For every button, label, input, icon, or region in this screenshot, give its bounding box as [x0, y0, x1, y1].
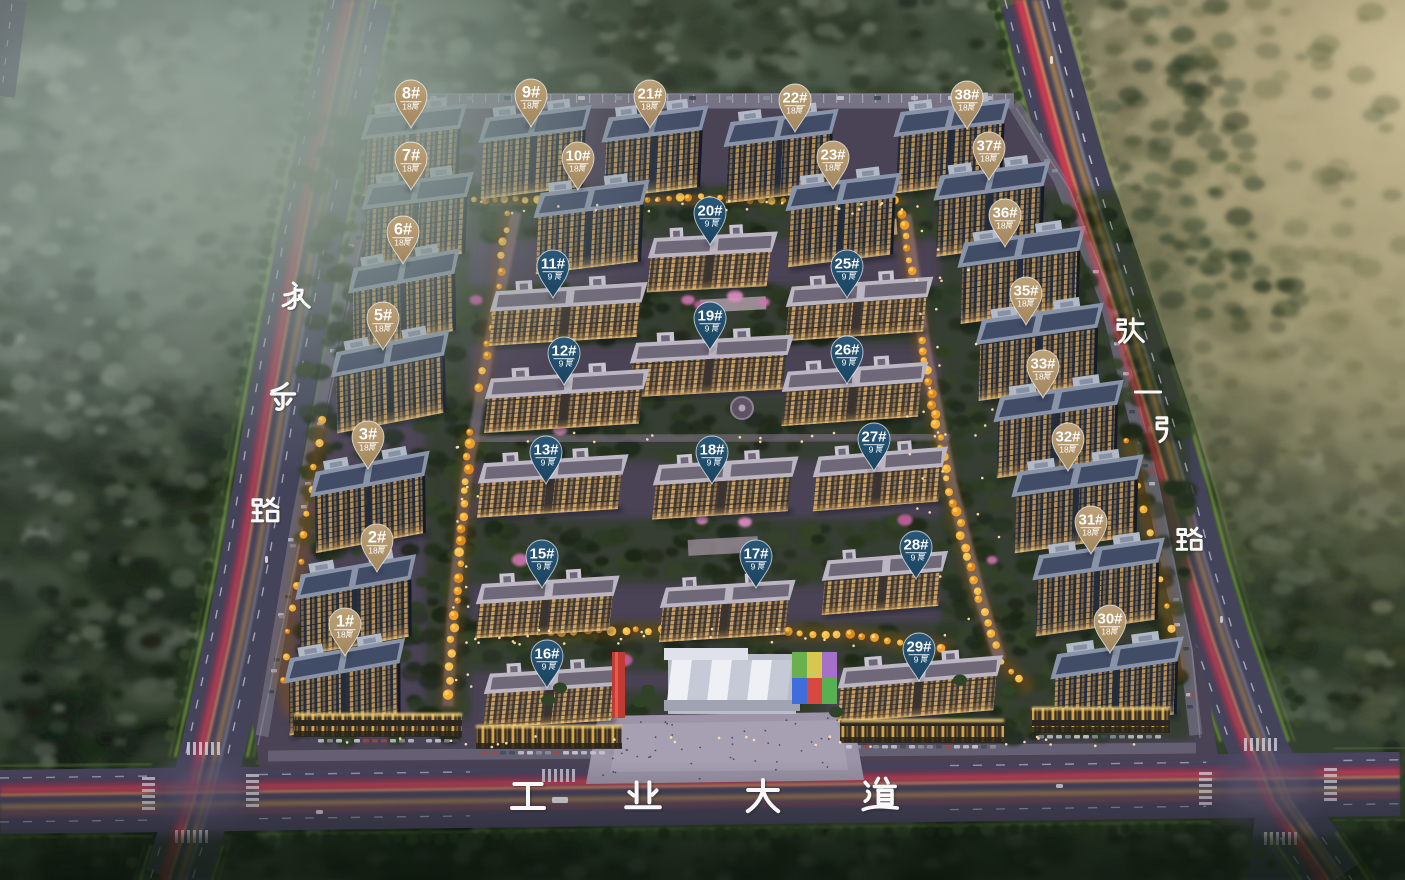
svg-text:18: 18	[1101, 627, 1111, 637]
svg-text:9: 9	[869, 445, 874, 455]
svg-text:9: 9	[705, 324, 710, 334]
svg-text:18: 18	[368, 546, 378, 556]
svg-text:2#: 2#	[368, 529, 386, 547]
svg-text:28#: 28#	[903, 537, 929, 554]
svg-text:30#: 30#	[1097, 611, 1123, 628]
svg-text:18: 18	[786, 106, 796, 116]
svg-text:15#: 15#	[529, 546, 555, 563]
svg-text:18: 18	[980, 154, 990, 164]
svg-text:9: 9	[542, 662, 547, 672]
svg-text:33#: 33#	[1030, 356, 1056, 373]
svg-text:18: 18	[1082, 528, 1092, 538]
svg-text:31#: 31#	[1078, 512, 1104, 529]
svg-text:12#: 12#	[551, 343, 577, 360]
svg-text:9: 9	[541, 458, 546, 468]
svg-text:8#: 8#	[402, 85, 420, 103]
svg-text:38#: 38#	[954, 87, 980, 104]
svg-text:18: 18	[359, 443, 369, 453]
svg-text:10#: 10#	[565, 148, 591, 165]
svg-text:13#: 13#	[533, 442, 559, 459]
svg-text:9: 9	[705, 219, 710, 229]
svg-text:18: 18	[1017, 299, 1027, 309]
svg-text:17#: 17#	[743, 546, 769, 563]
svg-text:18: 18	[402, 102, 412, 112]
svg-text:29#: 29#	[906, 639, 932, 656]
svg-text:21#: 21#	[637, 86, 663, 103]
svg-text:18#: 18#	[699, 442, 725, 459]
svg-text:9: 9	[537, 562, 542, 572]
svg-text:36#: 36#	[992, 205, 1018, 222]
svg-text:26#: 26#	[834, 342, 860, 359]
svg-text:19#: 19#	[697, 308, 723, 325]
svg-text:18: 18	[522, 101, 532, 111]
svg-text:18: 18	[996, 221, 1006, 231]
svg-text:18: 18	[641, 102, 651, 112]
svg-text:6#: 6#	[394, 221, 412, 239]
svg-text:9: 9	[911, 553, 916, 563]
svg-text:18: 18	[336, 630, 346, 640]
svg-text:18: 18	[958, 103, 968, 113]
svg-text:9#: 9#	[522, 84, 540, 102]
svg-text:9: 9	[559, 359, 564, 369]
svg-text:11#: 11#	[541, 256, 566, 273]
svg-text:18: 18	[402, 164, 412, 174]
svg-text:16#: 16#	[534, 646, 560, 663]
svg-text:18: 18	[394, 238, 404, 248]
svg-text:32#: 32#	[1055, 429, 1081, 446]
svg-text:9: 9	[842, 358, 847, 368]
svg-text:37#: 37#	[976, 138, 1002, 155]
svg-text:9: 9	[914, 655, 919, 665]
svg-text:5#: 5#	[374, 307, 392, 325]
svg-text:3#: 3#	[359, 426, 377, 444]
svg-text:9: 9	[548, 272, 553, 282]
svg-text:9: 9	[842, 272, 847, 282]
svg-text:23#: 23#	[820, 147, 846, 164]
svg-text:7#: 7#	[402, 147, 420, 165]
svg-text:18: 18	[1059, 445, 1069, 455]
svg-text:35#: 35#	[1013, 283, 1039, 300]
svg-text:18: 18	[374, 324, 384, 334]
svg-text:20#: 20#	[697, 203, 723, 220]
svg-text:25#: 25#	[834, 256, 860, 273]
svg-text:18: 18	[824, 163, 834, 173]
svg-text:18: 18	[1034, 372, 1044, 382]
svg-text:18: 18	[569, 164, 579, 174]
svg-text:1#: 1#	[336, 613, 354, 631]
svg-text:27#: 27#	[861, 429, 887, 446]
svg-text:9: 9	[751, 562, 756, 572]
svg-text:9: 9	[707, 458, 712, 468]
svg-text:22#: 22#	[782, 90, 808, 107]
